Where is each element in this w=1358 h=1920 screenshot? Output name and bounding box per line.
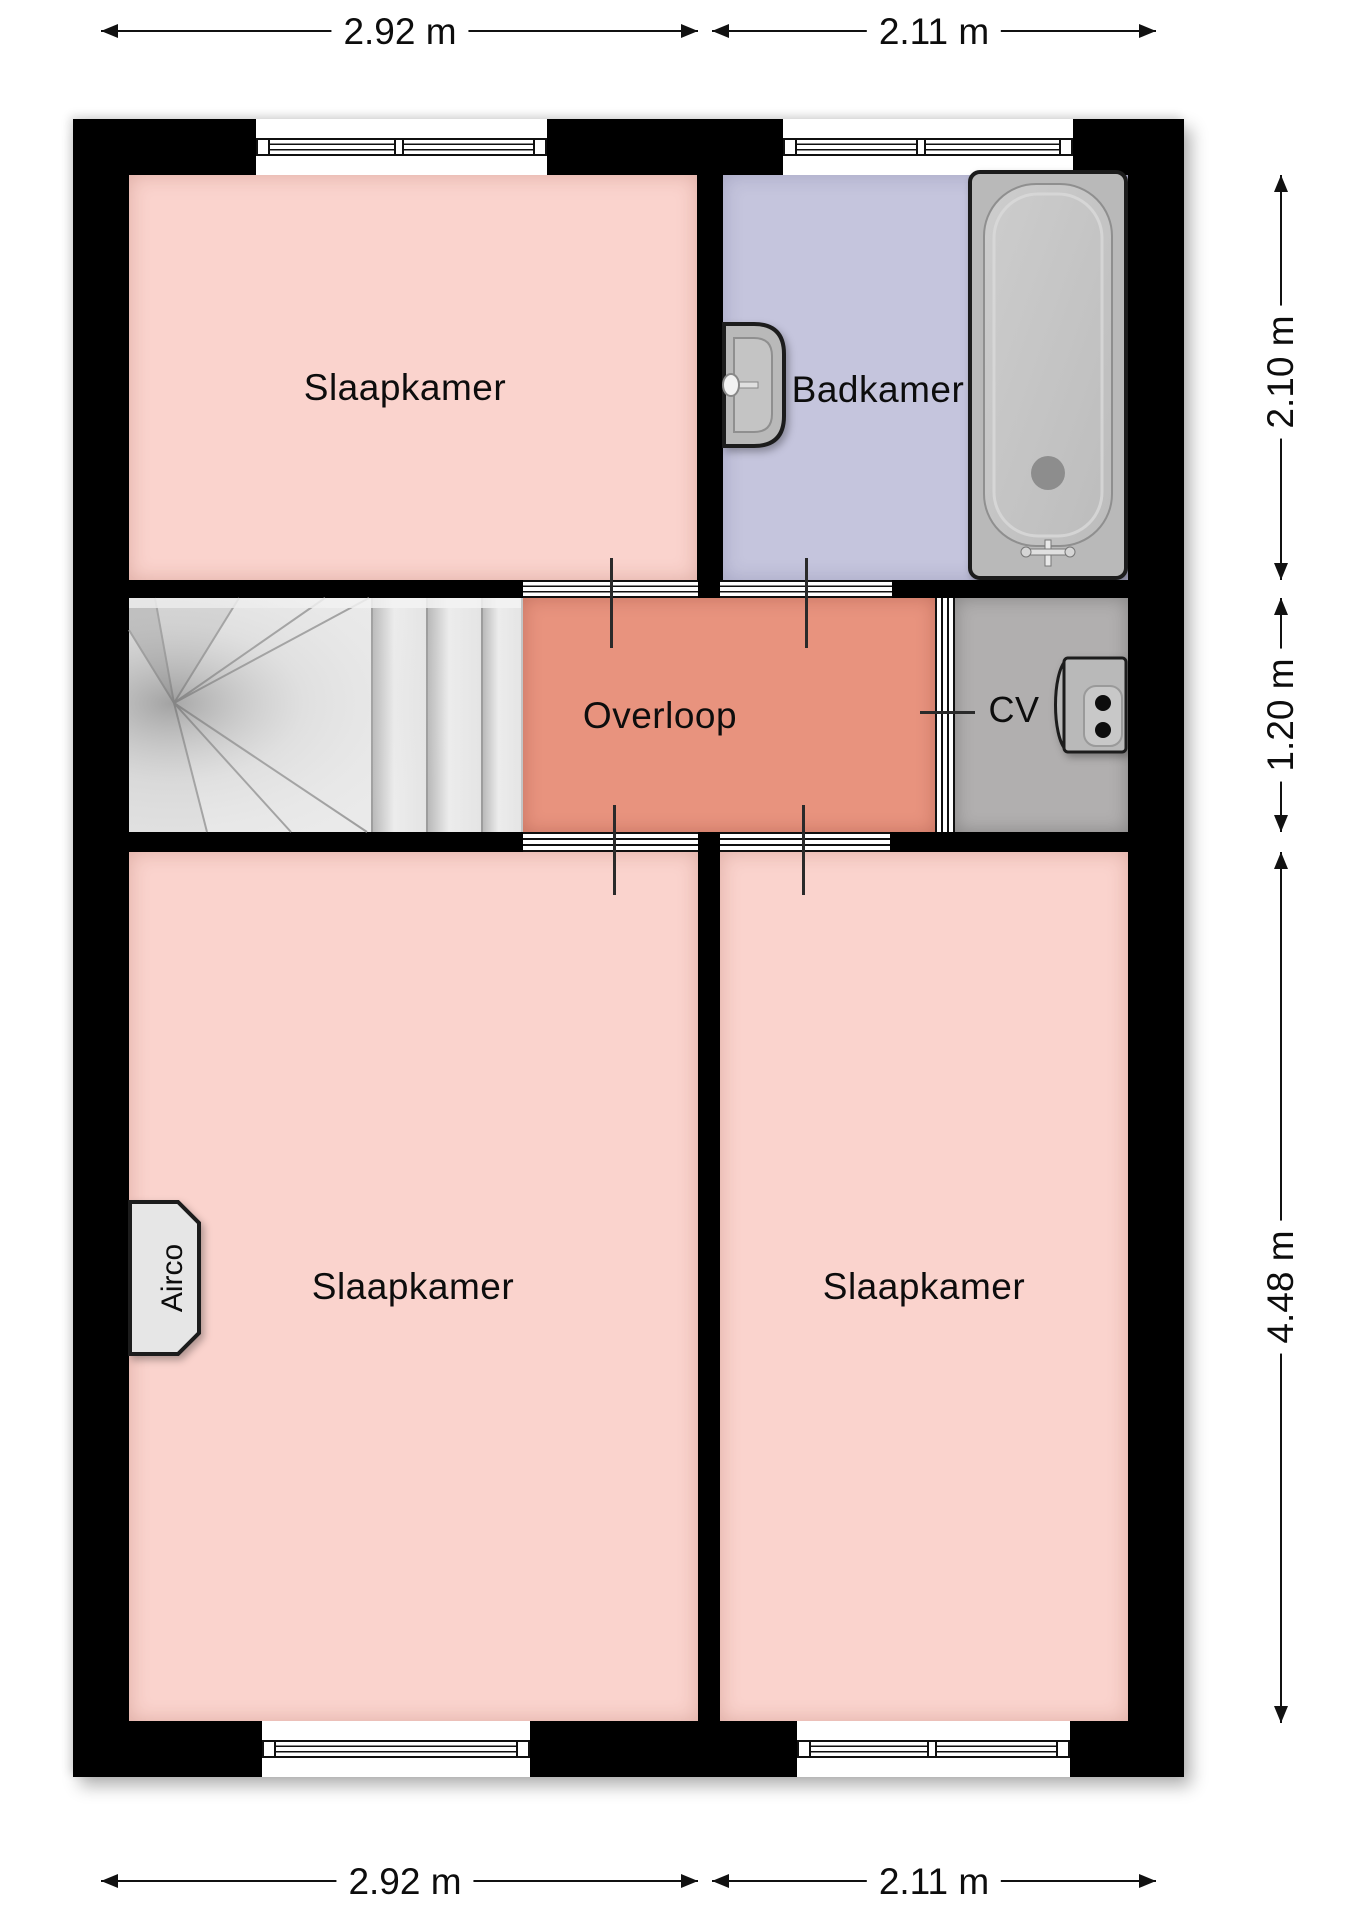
- floorplan-canvas: 2.92 m 2.11 m 2.10 m 1.20 m 4.48 m 2.92 …: [0, 0, 1358, 1920]
- room-label-cv: CV: [988, 689, 1039, 731]
- arrowhead-down-icon: [1274, 815, 1288, 832]
- window-post: [1056, 1740, 1070, 1758]
- arrowhead-down-icon: [1274, 1706, 1288, 1723]
- floorplan: Airco: [73, 119, 1184, 1777]
- door-tick: [802, 805, 805, 895]
- dimension-label: 2.92 m: [331, 11, 468, 53]
- arrowhead-right-icon: [1139, 24, 1156, 38]
- arrowhead-right-icon: [681, 24, 698, 38]
- dimension-label: 2.11 m: [867, 1861, 1001, 1903]
- window-glazing: [783, 138, 1073, 156]
- window-glazing: [262, 1740, 530, 1758]
- window-bottom-right: [797, 1721, 1070, 1777]
- window-post: [783, 138, 797, 156]
- window-post: [1059, 138, 1073, 156]
- window-post: [797, 1740, 811, 1758]
- arrowhead-left-icon: [712, 24, 729, 38]
- arrowhead-left-icon: [712, 1874, 729, 1888]
- door-tick: [610, 558, 613, 648]
- door-tick: [805, 558, 808, 648]
- cv-boiler: [1050, 656, 1128, 754]
- door-tick: [920, 711, 975, 714]
- window-post: [927, 1740, 937, 1758]
- stairs: [129, 598, 523, 832]
- arrowhead-left-icon: [101, 1874, 118, 1888]
- window-top-right: [783, 119, 1073, 175]
- room-label-slaapkamer-bottom-left: Slaapkamer: [312, 1266, 514, 1308]
- airco-label: Airco: [156, 1244, 189, 1312]
- window-post: [533, 138, 547, 156]
- arrowhead-up-icon: [1274, 598, 1288, 615]
- door-opening-bedroom-bottom-left: [523, 832, 698, 852]
- window-post: [516, 1740, 530, 1758]
- dimension-label: 1.20 m: [1260, 648, 1302, 781]
- window-post: [262, 1740, 276, 1758]
- arrowhead-right-icon: [681, 1874, 698, 1888]
- arrowhead-up-icon: [1274, 175, 1288, 192]
- window-post: [916, 138, 926, 156]
- room-label-overloop: Overloop: [583, 695, 737, 737]
- door-opening-cv: [935, 598, 955, 832]
- dimension-label: 2.11 m: [867, 11, 1001, 53]
- sink: [722, 322, 786, 448]
- window-bottom-left: [262, 1721, 530, 1777]
- window-post: [256, 138, 270, 156]
- arrowhead-right-icon: [1139, 1874, 1156, 1888]
- room-label-badkamer: Badkamer: [792, 369, 965, 411]
- dimension-label: 2.10 m: [1260, 305, 1302, 438]
- window-post: [394, 138, 404, 156]
- room-label-slaapkamer-bottom-right: Slaapkamer: [823, 1266, 1025, 1308]
- dimension-label: 2.92 m: [336, 1861, 473, 1903]
- arrowhead-up-icon: [1274, 852, 1288, 869]
- arrowhead-left-icon: [101, 24, 118, 38]
- door-tick: [613, 805, 616, 895]
- window-top-left: [256, 119, 547, 175]
- arrowhead-down-icon: [1274, 563, 1288, 580]
- dimension-label: 4.48 m: [1260, 1220, 1302, 1353]
- airco-unit: Airco: [128, 1200, 202, 1356]
- room-label-slaapkamer-top: Slaapkamer: [304, 367, 506, 409]
- door-opening-bedroom-bottom-right: [720, 832, 890, 852]
- bathtub: [968, 170, 1128, 580]
